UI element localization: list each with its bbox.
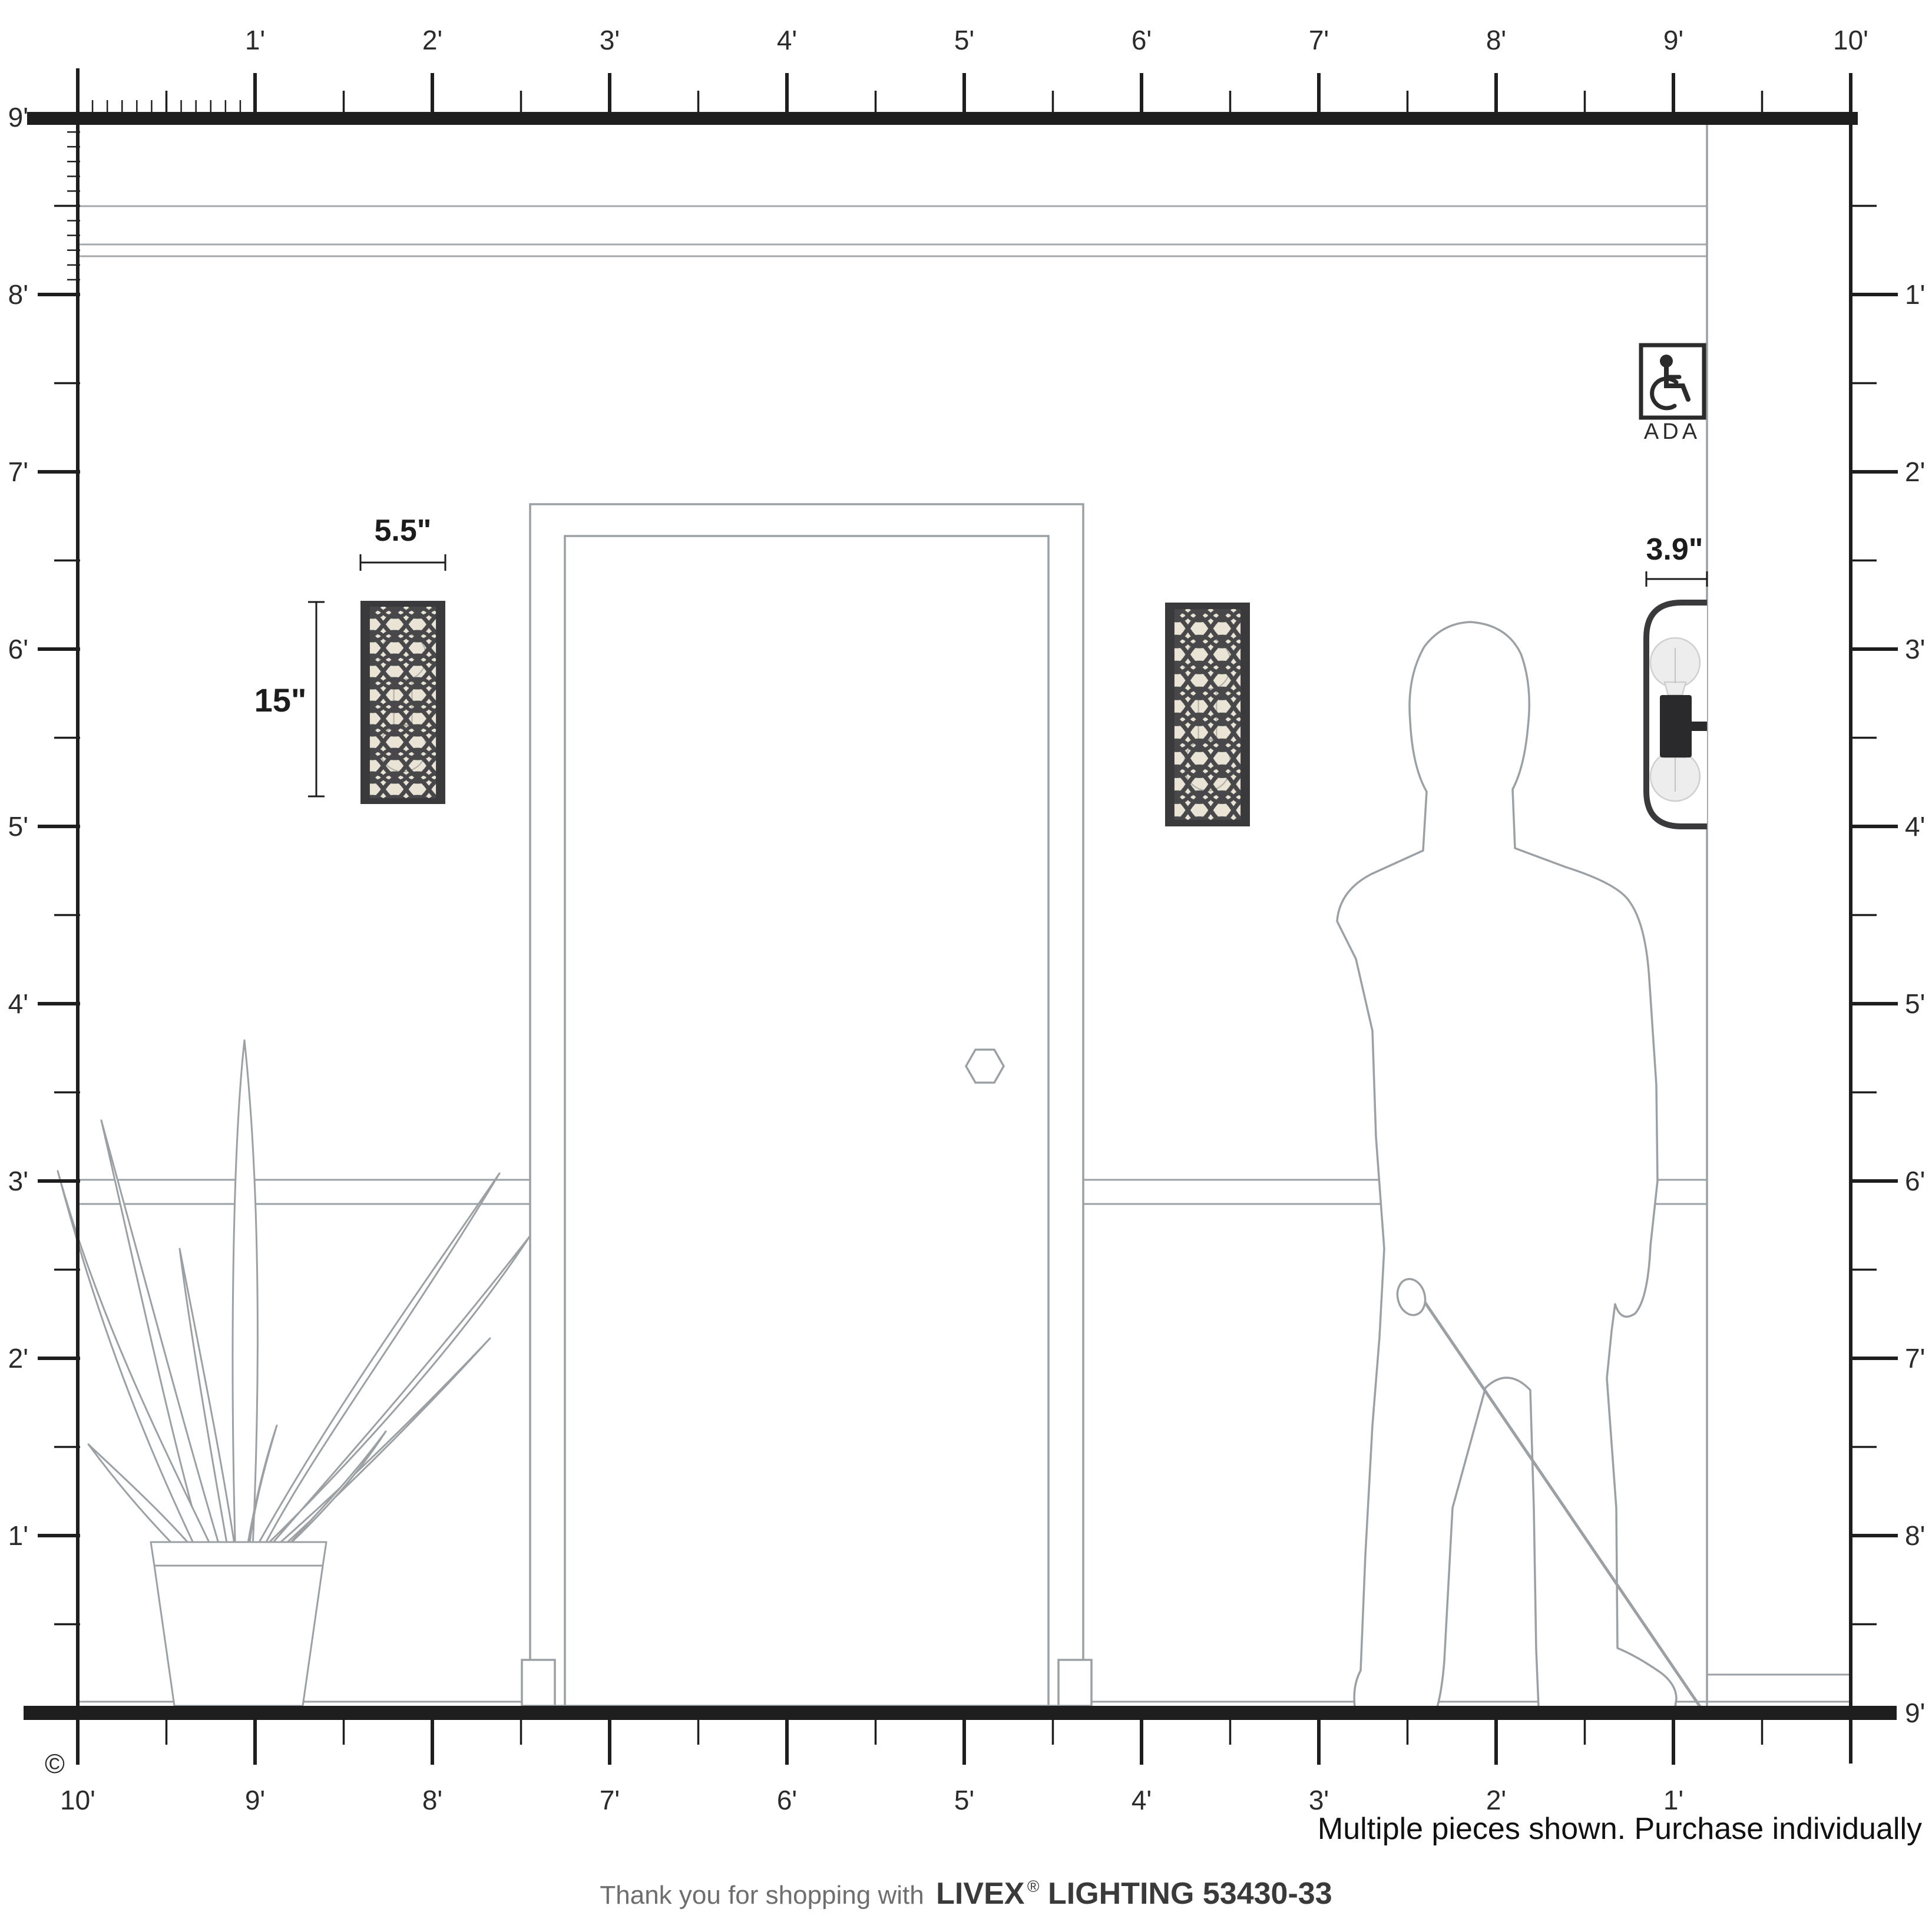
sconce-side — [1646, 603, 1707, 826]
dimension-width — [360, 554, 445, 571]
ruler-label: 1' — [1905, 279, 1925, 310]
sconce-front-left — [356, 601, 449, 804]
person-silhouette — [1337, 622, 1676, 1707]
ruler-label: 7' — [600, 1785, 620, 1815]
dimension-diagram: ADA 5.5" 15" 3.9" 1'2'3'4'5'6'7'8'9'10'9… — [0, 0, 1932, 1932]
ruler-label: 10' — [1833, 25, 1868, 55]
ruler-label: 2' — [1905, 456, 1925, 487]
dimension-depth — [1646, 571, 1707, 587]
ruler-label: 6' — [1905, 1166, 1925, 1196]
sconce-front-right — [1161, 603, 1254, 826]
ada-sign: ADA — [1641, 345, 1704, 444]
ruler-label: 1' — [245, 25, 265, 55]
ruler-label: 7' — [8, 456, 28, 487]
ruler-label: 7' — [1309, 25, 1329, 55]
footer-text: Thank you for shopping with LIVEX ® LIGH… — [600, 1877, 1332, 1911]
potted-plant — [58, 1040, 530, 1706]
footer-reg-mark: ® — [1027, 1877, 1040, 1895]
door-slab — [565, 536, 1048, 1706]
ada-label: ADA — [1644, 419, 1701, 444]
ruler-label: 5' — [954, 1785, 974, 1815]
footer-brand: LIVEX — [936, 1877, 1025, 1911]
ruler-label: 2' — [1486, 1785, 1506, 1815]
ruler-label: 8' — [422, 1785, 442, 1815]
ruler-label: 2' — [422, 25, 442, 55]
ruler-label: 9' — [1663, 25, 1683, 55]
ruler-label: 1' — [8, 1520, 28, 1551]
ruler-label: 10' — [60, 1785, 95, 1815]
plant-pot-body — [154, 1566, 323, 1706]
door — [522, 504, 1091, 1706]
purchase-note: Multiple pieces shown. Purchase individu… — [1318, 1812, 1922, 1846]
floor-line — [24, 1706, 1897, 1720]
ruler-label: 9' — [1905, 1698, 1925, 1728]
ruler-label: 8' — [8, 279, 28, 310]
ruler-label: 7' — [1905, 1343, 1925, 1374]
right-ruler-line — [1849, 119, 1852, 1764]
footer-product: LIGHTING 53430-33 — [1048, 1877, 1332, 1911]
ruler-label: 2' — [8, 1343, 28, 1374]
ruler-label: 4' — [1132, 1785, 1152, 1815]
ruler-label: 4' — [1905, 811, 1925, 842]
ruler-label: 6' — [777, 1785, 797, 1815]
ruler-label: 4' — [8, 988, 28, 1019]
door-plinth-right — [1058, 1660, 1091, 1706]
ruler-label: 6' — [8, 634, 28, 664]
dimension-height — [308, 602, 325, 796]
ruler-label: 6' — [1132, 25, 1152, 55]
ruler-label: 9' — [8, 102, 28, 133]
door-knob — [966, 1050, 1004, 1083]
ruler-label: 4' — [777, 25, 797, 55]
door-plinth-left — [522, 1660, 555, 1706]
crown-molding — [79, 206, 1707, 256]
footer-prefix: Thank you for shopping with — [600, 1881, 924, 1910]
dimension-height-label: 15" — [254, 682, 307, 719]
ruler-label: 3' — [1905, 634, 1925, 664]
dimension-width-label: 5.5" — [375, 514, 432, 548]
ceiling-line — [27, 112, 1858, 125]
ruler-label: 8' — [1905, 1520, 1925, 1551]
ruler-label: 5' — [1905, 988, 1925, 1019]
plant-pot — [151, 1542, 326, 1566]
ruler-label: 3' — [8, 1166, 28, 1196]
ruler-label: 5' — [8, 811, 28, 842]
ruler-label: 9' — [245, 1785, 265, 1815]
ruler-label: 8' — [1486, 25, 1506, 55]
dimension-depth-label: 3.9" — [1646, 532, 1703, 567]
copyright-symbol: © — [45, 1748, 65, 1779]
ruler-label: 3' — [1309, 1785, 1329, 1815]
ruler-label: 1' — [1663, 1785, 1683, 1815]
ruler-label: 3' — [600, 25, 620, 55]
ruler-label: 5' — [954, 25, 974, 55]
